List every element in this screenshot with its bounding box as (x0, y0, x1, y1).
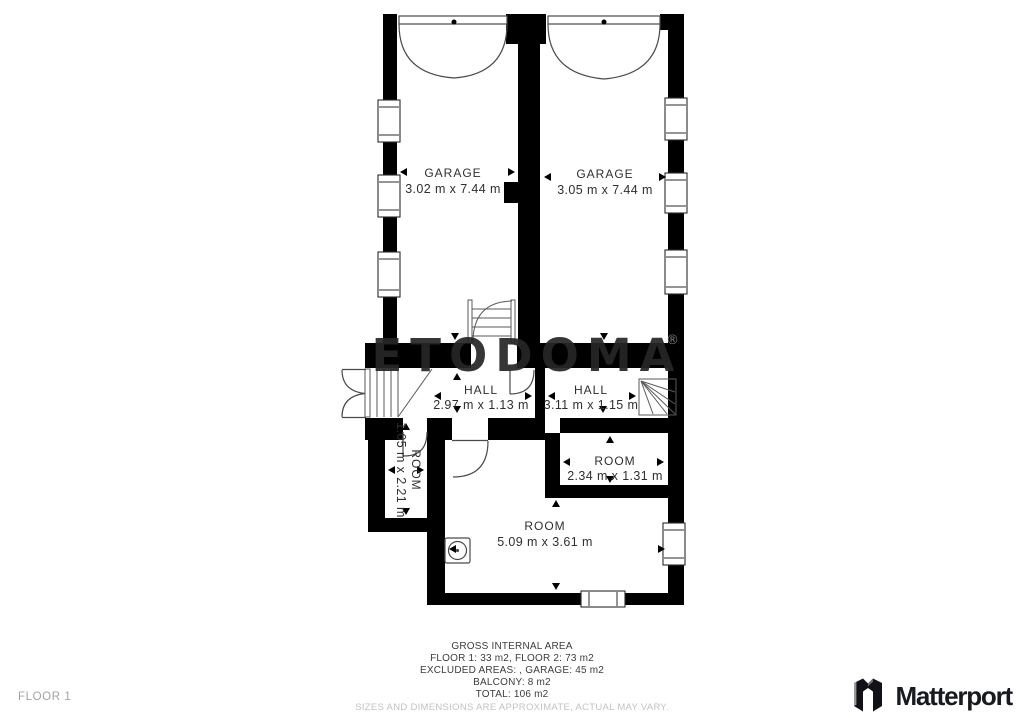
hall-right-dims: 3.11 m x 1.15 m (544, 398, 639, 412)
room-small-name: ROOM (409, 449, 423, 490)
window (378, 100, 400, 142)
walls-layer (365, 14, 684, 605)
garage-right-name: GARAGE (576, 167, 633, 181)
room-mid-dims: 2.34 m x 1.31 m (567, 469, 663, 483)
hall-right-name: HALL (574, 383, 608, 397)
watermark-text: ETODOMA (372, 329, 683, 382)
matterport-brand: Matterport (848, 676, 1012, 716)
garage-door-right (548, 16, 660, 79)
garage-door-left (399, 16, 507, 78)
room-mid-name: ROOM (594, 454, 635, 468)
watermark-registered-mark: ® (666, 333, 679, 348)
hall-left-dims: 2.97 m x 1.13 m (433, 398, 529, 412)
window (665, 173, 687, 213)
garage-left-dims: 3.02 m x 7.44 m (405, 182, 501, 196)
area-summary-floors: FLOOR 1: 33 m2, FLOOR 2: 73 m2 (0, 653, 1024, 665)
room-large-dims: 5.09 m x 3.61 m (497, 535, 593, 549)
room-large-name: ROOM (524, 519, 565, 533)
floor-label: FLOOR 1 (18, 691, 71, 703)
window (665, 250, 687, 294)
floorplan-page: { "plan": { "watermark": { "text": "ETOD… (0, 0, 1024, 724)
window (665, 98, 687, 140)
matterport-wordmark: Matterport (895, 681, 1012, 712)
window (378, 252, 400, 297)
area-summary-title: GROSS INTERNAL AREA (0, 641, 1024, 653)
window (663, 523, 685, 565)
window (581, 591, 625, 607)
door-room-large (452, 441, 488, 478)
garage-right-dims: 3.05 m x 7.44 m (557, 183, 653, 197)
garage-left-name: GARAGE (424, 166, 481, 180)
room-small-dims: 1.05 m x 2.21 m (394, 422, 408, 518)
watermark: ETODOMA ® (372, 329, 683, 382)
entry-double-door (342, 370, 366, 418)
sink-fixture-icon (445, 538, 470, 563)
floorplan-canvas: ETODOMA ® GARAGE 3.02 m x 7.44 m GARAGE … (0, 0, 1024, 724)
hall-left-name: HALL (464, 383, 498, 397)
window (378, 175, 400, 217)
matterport-logo-icon (848, 676, 888, 716)
